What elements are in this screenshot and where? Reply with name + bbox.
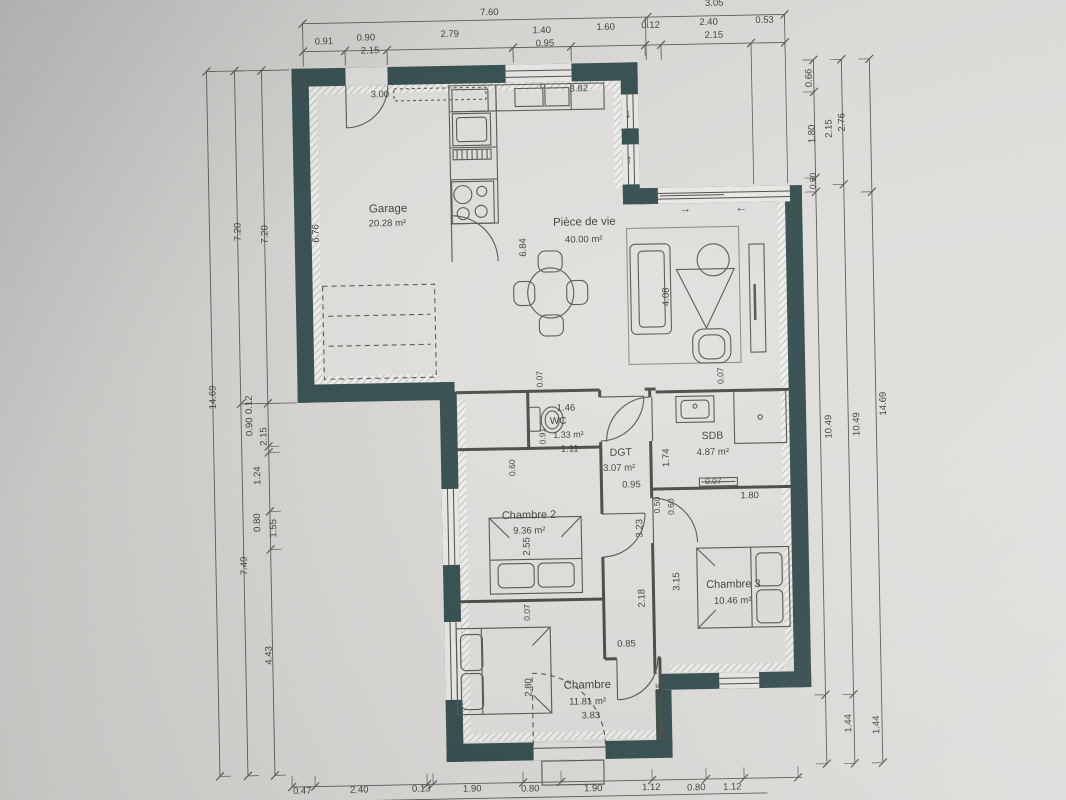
dimension-label: 1.40 <box>532 25 551 36</box>
dimension-label: 2.76 <box>836 113 847 132</box>
living-window-1-pane <box>633 94 634 128</box>
floor-plan-canvas: 7.603.050.910.902.152.791.400.951.600.12… <box>0 0 1066 800</box>
slider-arrow: → <box>679 201 691 215</box>
dimension-label: 1.55 <box>268 519 279 538</box>
dimension-label: 1.46 <box>557 403 576 414</box>
kitchen-window <box>505 64 571 83</box>
chambre3-window <box>719 672 759 689</box>
dimension-label: 7.49 <box>239 557 250 576</box>
dimension-label: 0.90 <box>356 32 375 43</box>
dimension-label: 0.95 <box>622 479 641 490</box>
dimension-label: 0.07 <box>715 367 725 384</box>
dimension-label: 0.13 <box>412 783 431 794</box>
tv <box>755 284 756 320</box>
room-label-chambre2: Chambre 2 <box>502 509 557 522</box>
dimension-label: 1.60 <box>596 22 615 33</box>
dimension-label: 4.43 <box>263 646 274 665</box>
dimension-label: 0.53 <box>755 15 774 26</box>
dimension-label: 14.69 <box>207 385 218 409</box>
dimension-label: 2.18 <box>636 589 647 608</box>
dimension-label: 0.80 <box>521 783 540 794</box>
dimension-label: 0.12 <box>244 395 255 414</box>
room-area-sdb: 4.87 m² <box>697 447 729 459</box>
dimension-label: 2.15 <box>823 119 834 138</box>
room-label-chambre: Chambre <box>564 679 612 692</box>
room-area-garage: 20.28 m² <box>369 218 407 230</box>
dimension-label: 0.95 <box>536 38 555 49</box>
garage-door-opening <box>345 67 387 86</box>
dimension-label: 0.07 <box>522 604 532 621</box>
room-label-wc: WC <box>550 416 567 427</box>
dimension-label: 2.15 <box>361 45 380 56</box>
dim-chain-left-1 <box>206 72 220 777</box>
floor-plan-drawing: 7.603.050.910.902.152.791.400.951.600.12… <box>200 0 896 800</box>
dimension-label: 1.74 <box>661 448 672 467</box>
dimension-label: 0.85 <box>617 638 636 649</box>
dimension-label: 1.45 <box>654 683 665 702</box>
dimension-label: 3.05 <box>705 0 724 9</box>
dimension-label: 1.80 <box>740 490 759 501</box>
dimension-label: 1.44 <box>871 715 882 734</box>
dimension-label: 2.15 <box>704 30 723 41</box>
dimension-label: 0.50 <box>652 496 662 513</box>
chambre2-window <box>441 489 459 565</box>
dimension-label: 14.69 <box>878 392 889 416</box>
dimension-label: 1.90 <box>584 783 603 794</box>
dimension-label: 7.20 <box>232 223 243 242</box>
dimension-label: 3.00 <box>371 89 390 100</box>
dimension-label: 1.80 <box>807 125 818 144</box>
dim-chain-right-1 <box>813 60 827 764</box>
dimension-label: 4.08 <box>661 287 672 306</box>
dimension-label: 0.60 <box>666 498 676 515</box>
dimension-label: 2.55 <box>521 537 532 556</box>
room-area-wc: 1.33 m² <box>553 429 584 440</box>
dimension-label: 0.91 <box>537 428 547 445</box>
plan-line <box>303 24 304 67</box>
dimension-label: 0.60 <box>507 459 517 476</box>
exterior-wall-garage-south <box>297 382 454 403</box>
room-area-chambre2: 9.36 m² <box>513 525 545 537</box>
dimension-label: 2.80 <box>523 678 534 697</box>
dimension-label: 10.49 <box>851 412 862 436</box>
dimension-label: 3.83 <box>582 710 601 721</box>
dimension-label: 10.49 <box>823 415 834 439</box>
window-arrow: ↓ <box>625 106 631 120</box>
room-label-dgt: DGT <box>610 446 633 458</box>
dimension-label: 0.07 <box>534 371 544 388</box>
dimension-label: 0.07 <box>705 476 722 486</box>
plan-line <box>751 43 754 184</box>
dimension-label: 0.80 <box>252 513 263 532</box>
dimension-label: 0.12 <box>641 20 660 31</box>
interior-wall <box>601 442 602 514</box>
room-label-sdb: SDB <box>702 430 724 442</box>
dimension-label: 3.15 <box>671 572 682 591</box>
slider-arrow: ← <box>735 200 747 214</box>
dimension-label: 2.40 <box>350 785 369 796</box>
dimension-label: 7.20 <box>259 225 270 244</box>
dimension-label: 3.82 <box>569 83 588 94</box>
dimension-label: 6.76 <box>310 224 321 243</box>
floor-plan-photo: 7.603.050.910.902.152.791.400.951.600.12… <box>0 0 1066 800</box>
dim-chain-right-2 <box>841 59 855 763</box>
room-label-garage: Garage <box>369 203 408 216</box>
dim-chain-left-3 <box>261 70 275 775</box>
dimension-label: 1.24 <box>252 466 263 485</box>
room-area-dgt: 3.07 m² <box>603 462 635 474</box>
dimension-label: 0.90 <box>244 417 255 436</box>
dimension-label: 6.84 <box>518 238 529 257</box>
dimension-label: 1.44 <box>843 714 854 733</box>
window-arrow: ↑ <box>626 152 632 166</box>
dimension-label: 0.30 <box>807 172 817 189</box>
dimension-label: 7.60 <box>480 7 499 18</box>
dimension-label: 1.12 <box>723 781 742 792</box>
room-label-chambre3: Chambre 3 <box>706 578 761 591</box>
dimension-label: 0.66 <box>803 69 814 88</box>
dimension-label: 0.91 <box>315 36 334 47</box>
dimension-label: 1.11 <box>561 443 579 454</box>
interior-wall <box>528 391 529 448</box>
room-label-piece-de-vie: Pièce de vie <box>553 216 616 229</box>
dimension-label: 2.15 <box>258 427 269 446</box>
plan-line <box>208 70 289 72</box>
dimension-label: 2.79 <box>440 29 459 40</box>
dimension-label: 1.90 <box>463 783 482 794</box>
dimension-label: 0.47 <box>293 786 312 797</box>
room-area-piece-de-vie: 40.00 m² <box>565 234 603 246</box>
entry-door-opening <box>533 741 605 760</box>
dimension-label: 3.23 <box>634 519 645 538</box>
room-area-chambre: 11.81 m² <box>569 696 606 708</box>
dimension-label: 0.80 <box>687 782 706 793</box>
dimension-label: 1.12 <box>642 782 661 793</box>
dimension-label: 2.40 <box>699 17 718 28</box>
interior-wall <box>603 557 605 659</box>
room-area-chambre3: 10.46 m² <box>714 595 752 607</box>
chambre-window <box>444 622 462 700</box>
